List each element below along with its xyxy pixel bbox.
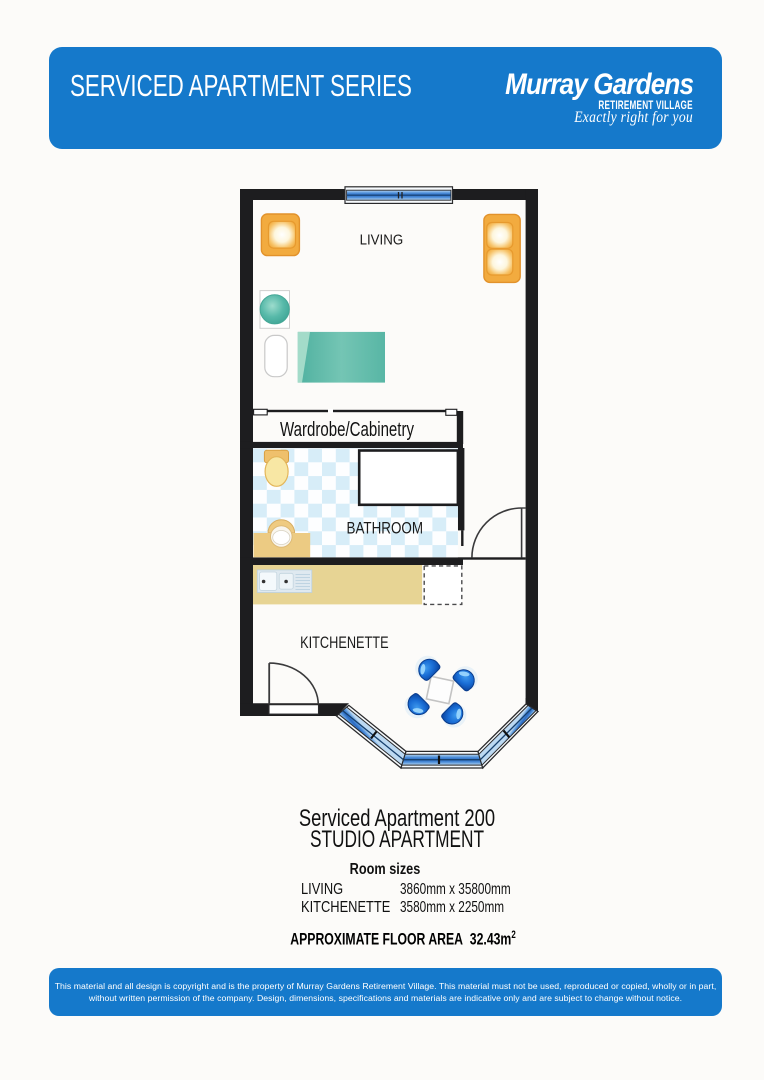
- svg-text:LIVING: LIVING: [360, 232, 404, 249]
- svg-text:BATHROOM: BATHROOM: [347, 519, 424, 538]
- svg-text:KITCHENETTE: KITCHENETTE: [300, 633, 389, 652]
- svg-text:Wardrobe/Cabinetry: Wardrobe/Cabinetry: [280, 419, 414, 441]
